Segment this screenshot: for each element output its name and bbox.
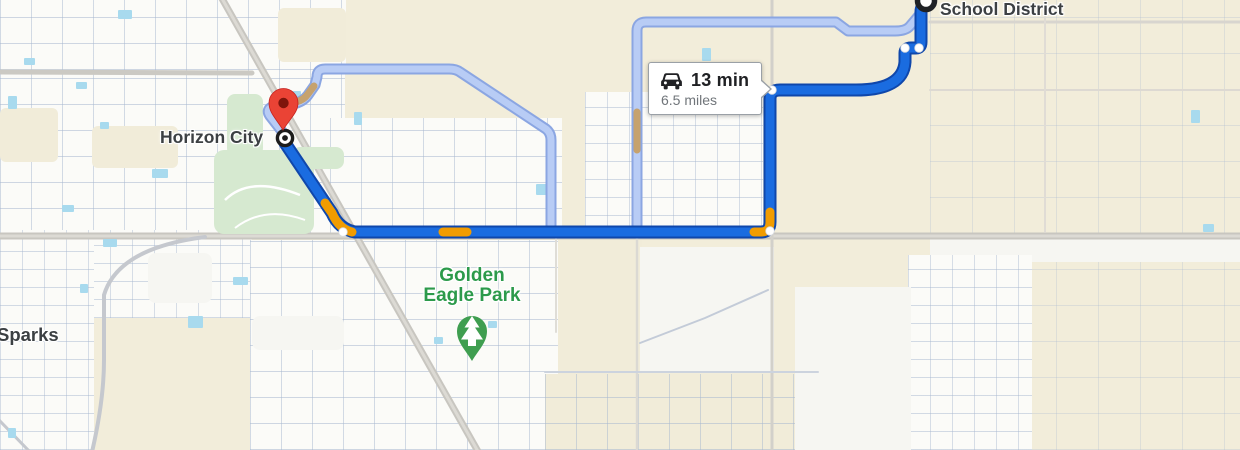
route-info-bubble[interactable]: 13 min 6.5 miles — [648, 62, 762, 115]
label-park-line1: Golden — [397, 266, 547, 286]
label-park[interactable]: Golden Eagle Park — [397, 266, 547, 306]
label-neighborhood-sparks[interactable]: Sparks — [0, 324, 59, 346]
waypoint-dot — [766, 227, 775, 236]
park-tree-pin-icon[interactable] — [457, 316, 487, 361]
label-destination-area[interactable]: School District — [940, 0, 1064, 20]
route-distance: 6.5 miles — [661, 92, 749, 108]
waypoint-dot — [339, 228, 348, 237]
origin-bullseye-icon[interactable] — [277, 130, 292, 145]
map-vector-layer — [0, 0, 1240, 450]
label-park-line2: Eagle Park — [397, 286, 547, 306]
car-icon — [659, 71, 684, 91]
route-alternate-north[interactable] — [637, 13, 921, 230]
route-primary[interactable] — [285, 3, 927, 236]
route-duration: 13 min — [691, 70, 749, 91]
waypoint-dot — [915, 44, 924, 53]
map-canvas[interactable]: Horizon City School District Sparks Gold… — [0, 0, 1240, 450]
destination-circle-icon[interactable] — [918, 0, 935, 10]
waypoint-dot — [901, 44, 910, 53]
label-origin-city[interactable]: Horizon City — [160, 127, 263, 148]
roads-layer — [0, 0, 1240, 450]
